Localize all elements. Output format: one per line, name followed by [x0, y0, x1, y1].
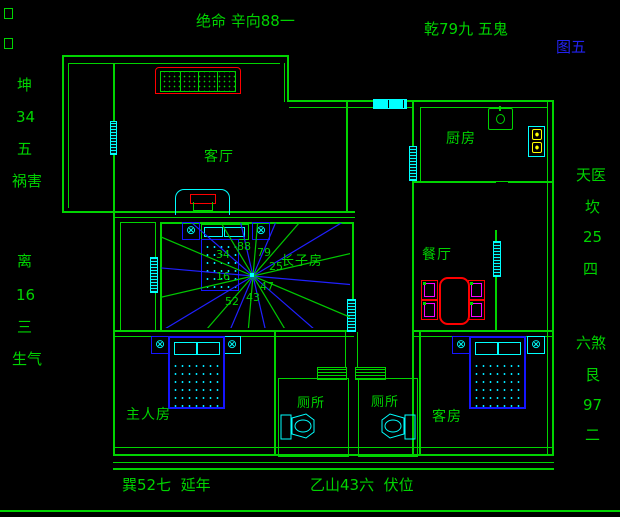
vent-window: [355, 367, 386, 380]
dining-chair: [421, 280, 438, 300]
wall: [419, 330, 421, 456]
wall: [284, 63, 285, 102]
label-left: 坤: [17, 78, 32, 94]
label-right: 二: [585, 428, 600, 444]
dining-chair: [468, 300, 485, 320]
compass-number: 47: [260, 280, 274, 293]
label-left: 16: [16, 288, 35, 304]
wall: [113, 211, 115, 456]
compass-number: 88: [237, 240, 251, 253]
room-label-dining: 餐厅: [422, 244, 452, 264]
label-left: 五: [17, 142, 32, 158]
compass-number: 43: [246, 291, 260, 304]
label-left: 生气: [12, 352, 42, 368]
wall: [274, 330, 276, 456]
wall: [113, 211, 355, 213]
lamp-icon: ⊗: [527, 336, 545, 354]
room-label-toilet-left: 厕所: [297, 392, 325, 411]
wall: [68, 63, 69, 208]
label-left: 34: [16, 110, 35, 126]
label-right: 四: [583, 262, 598, 278]
figure-tag: 图五: [556, 40, 586, 56]
window: [373, 99, 407, 109]
floor-plan-canvas: ⊗ ⊗ 88 79 25 47 43 52 34 16 ⊗ ⊗ ⊗ ⊗ 客厅 厨…: [0, 0, 620, 517]
wall: [287, 55, 289, 102]
bed: [168, 336, 225, 409]
lamp-icon: ⊗: [452, 336, 470, 354]
wall: [113, 462, 554, 463]
room-label-eldest-son: 长子房: [281, 250, 323, 269]
wall: [62, 55, 64, 213]
wall: [62, 55, 289, 57]
dining-chair: [421, 300, 438, 320]
room-label-kitchen: 厨房: [446, 128, 476, 148]
label-right: 25: [583, 230, 602, 246]
wall: [508, 181, 554, 183]
window: [493, 241, 501, 277]
room-label-guest: 客房: [432, 406, 462, 426]
wall: [287, 100, 554, 102]
compass-rays: [161, 223, 350, 328]
label-bottom-left: 巽52七 延年: [122, 478, 211, 494]
toilet-icon: [280, 410, 318, 444]
wall: [113, 468, 554, 470]
tv-cabinet: [175, 189, 230, 215]
compass-number: 52: [225, 295, 239, 308]
label-right: 坎: [585, 200, 600, 216]
wall: [412, 181, 496, 183]
label-right: 六煞: [576, 336, 606, 352]
compass-center: [250, 273, 254, 277]
wall: [62, 211, 115, 213]
vent-window: [317, 367, 347, 380]
label-left: 祸害: [12, 174, 42, 190]
label-right: 97: [583, 398, 602, 414]
compass-number: 16: [216, 270, 230, 283]
lamp-icon: ⊗: [223, 336, 241, 354]
label-bottom-right: 乙山43六 伏位: [310, 478, 414, 494]
window: [409, 146, 417, 181]
ground-line: [0, 510, 620, 512]
room-label-toilet-right: 厕所: [371, 391, 399, 410]
corner-mark-icon: [4, 38, 13, 49]
compass-number: 79: [257, 246, 271, 259]
window: [150, 257, 158, 293]
stove: [528, 126, 545, 157]
label-right: 天医: [576, 168, 606, 184]
wall: [412, 330, 554, 332]
label-left: 三: [17, 320, 32, 336]
wall: [346, 102, 348, 213]
wall: [113, 217, 355, 218]
window: [110, 121, 117, 155]
planter-box: [155, 67, 241, 94]
label-top: 绝命 辛向88一: [196, 14, 295, 30]
label-right: 艮: [585, 368, 600, 384]
toilet-icon: [378, 410, 416, 444]
dining-chair: [468, 280, 485, 300]
compass-number: 34: [216, 248, 230, 261]
label-top-right: 乾79九 五鬼: [424, 22, 508, 38]
room-label-master: 主人房: [126, 404, 171, 424]
wall: [552, 100, 554, 456]
room-label-living: 客厅: [204, 146, 234, 166]
lamp-icon: ⊗: [151, 336, 169, 354]
bed: [469, 336, 526, 409]
dining-table: [439, 277, 470, 325]
kitchen-sink: [488, 108, 513, 130]
planter-plants: [160, 71, 236, 92]
label-left: 离: [17, 254, 32, 270]
wall: [68, 63, 280, 64]
corner-mark-icon: [4, 8, 13, 19]
